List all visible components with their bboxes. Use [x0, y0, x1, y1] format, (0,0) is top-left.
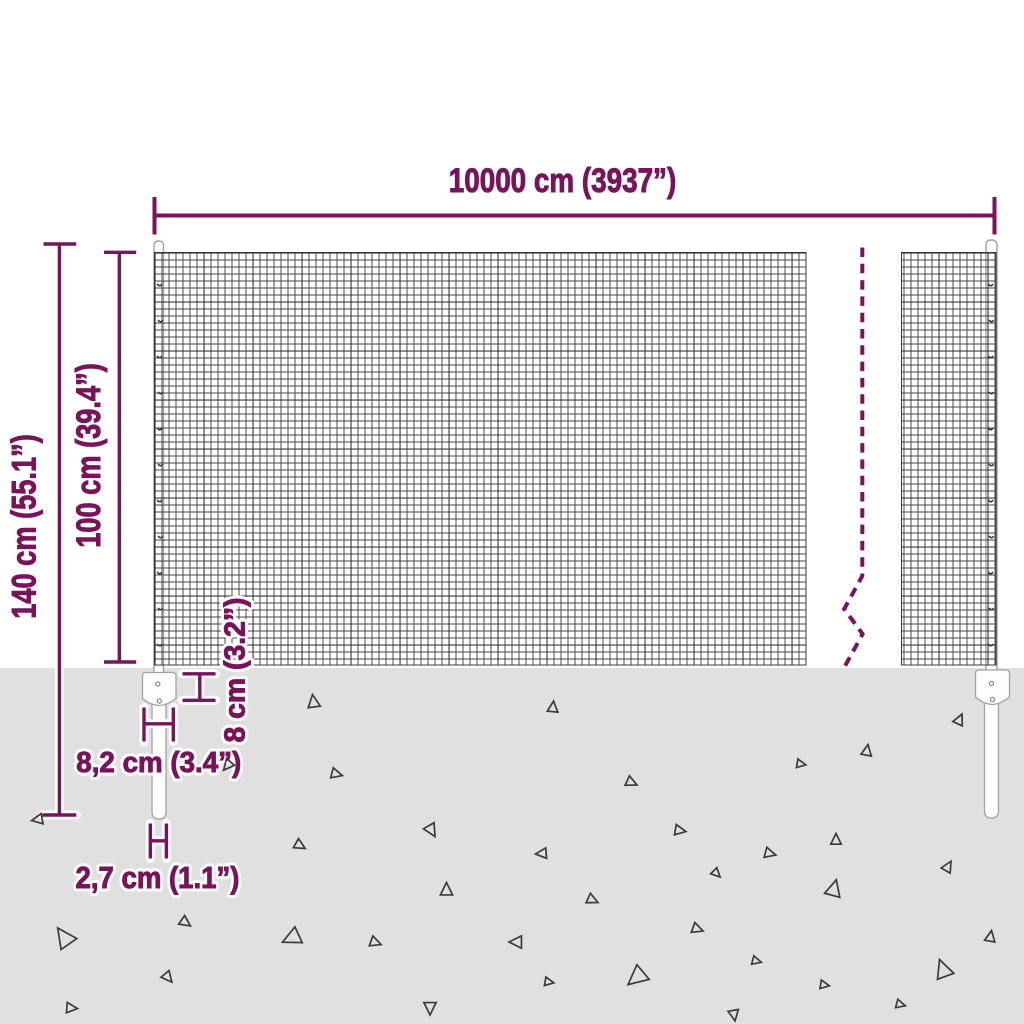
svg-text:8 cm (3.2”): 8 cm (3.2”)	[219, 598, 251, 743]
svg-text:140 cm (55.1”): 140 cm (55.1”)	[6, 434, 44, 619]
svg-text:8,2 cm (3.4”): 8,2 cm (3.4”)	[76, 747, 241, 779]
svg-text:2,7 cm (1.1”): 2,7 cm (1.1”)	[76, 861, 240, 895]
svg-text:10000 cm (3937”): 10000 cm (3937”)	[449, 162, 677, 200]
svg-text:100 cm (39.4”): 100 cm (39.4”)	[70, 363, 108, 548]
